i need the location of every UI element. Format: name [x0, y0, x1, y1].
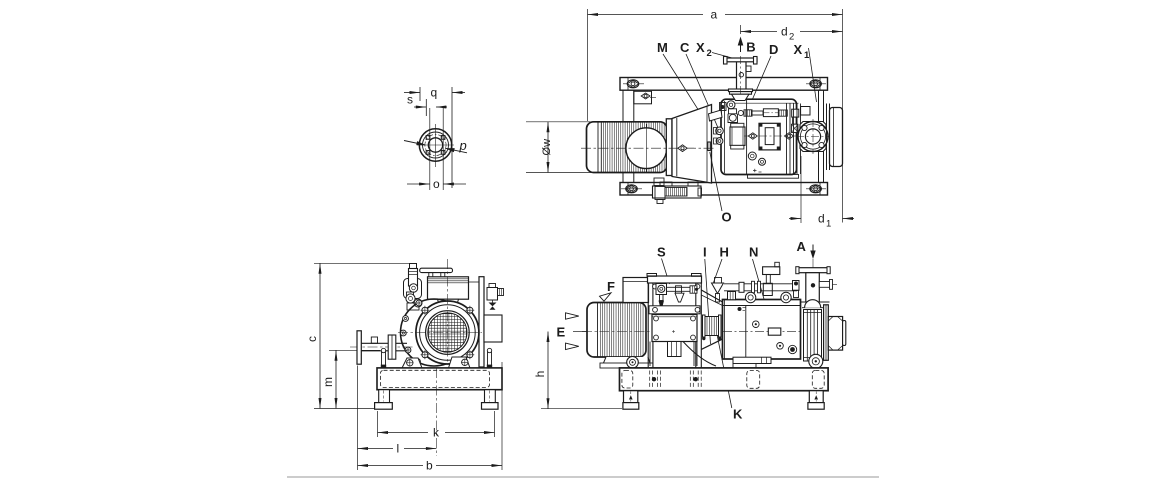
- svg-text:K: K: [733, 407, 743, 422]
- svg-text:c: c: [305, 336, 319, 342]
- svg-text:S: S: [657, 245, 666, 260]
- svg-text:k: k: [433, 426, 440, 440]
- svg-text:D: D: [769, 42, 778, 57]
- svg-text:p: p: [459, 138, 467, 153]
- svg-text:Øw: Øw: [541, 139, 553, 156]
- svg-text:B: B: [746, 40, 755, 55]
- svg-text:a: a: [711, 8, 718, 22]
- svg-text:X: X: [696, 40, 705, 55]
- svg-text:2: 2: [789, 32, 794, 43]
- svg-text:h: h: [533, 371, 547, 378]
- svg-text:A: A: [797, 239, 807, 254]
- svg-text:H: H: [720, 245, 729, 260]
- svg-text:d: d: [781, 25, 788, 39]
- svg-text:M: M: [657, 40, 668, 55]
- svg-text:d: d: [818, 212, 825, 226]
- svg-text:I: I: [703, 245, 707, 260]
- svg-text:X: X: [794, 42, 803, 57]
- svg-text:2: 2: [707, 48, 712, 59]
- svg-text:O: O: [722, 210, 732, 225]
- svg-text:F: F: [607, 279, 615, 294]
- svg-text:m: m: [321, 377, 335, 387]
- svg-text:o: o: [433, 177, 440, 191]
- svg-text:s: s: [407, 93, 413, 107]
- svg-text:E: E: [557, 325, 566, 340]
- svg-text:C: C: [680, 40, 690, 55]
- svg-text:l: l: [397, 442, 400, 456]
- svg-text:1: 1: [826, 219, 831, 230]
- svg-text:N: N: [749, 245, 758, 260]
- svg-text:b: b: [426, 459, 433, 473]
- svg-text:q: q: [431, 86, 438, 100]
